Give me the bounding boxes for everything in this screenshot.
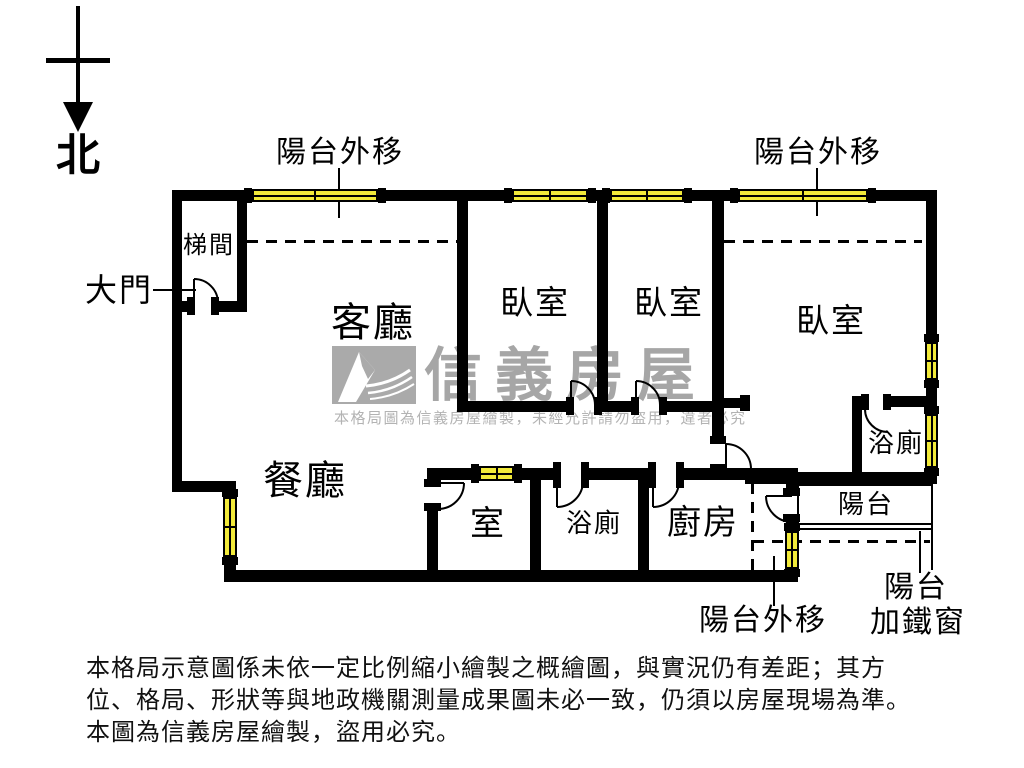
window-bed3-top xyxy=(738,189,868,202)
north-arrow-shaft xyxy=(76,6,80,106)
window-cap xyxy=(924,334,939,342)
doorjamb-bath1 xyxy=(553,462,561,488)
doorjamb-bed1 xyxy=(594,397,602,415)
room-label-bedroom3: 臥室 xyxy=(796,306,866,339)
dashed-old-balcony-bed3 xyxy=(724,240,922,243)
annotation-balcony-out-top-left: 陽台外移 xyxy=(276,138,404,168)
doorjamb-bed1 xyxy=(566,397,574,415)
doorjamb-smallroom xyxy=(424,503,441,511)
window-cap xyxy=(222,489,238,497)
leader-balcony-iron xyxy=(919,531,921,573)
room-label-bedroom1: 臥室 xyxy=(500,288,570,321)
doorjamb-balcony xyxy=(783,514,800,522)
doorjamb-smallroom xyxy=(424,479,441,487)
disclaimer-line2: 位、格局、形狀等與地政機關測量成果圖未必一致，仍須以房屋現場為準。 xyxy=(86,689,911,713)
wall-lower-right xyxy=(745,472,937,484)
room-label-bath2: 浴廁 xyxy=(868,431,924,457)
window-dining-left xyxy=(223,497,237,557)
room-label-living: 客廳 xyxy=(331,303,415,343)
doorjamb-balcony xyxy=(783,488,800,496)
window-smallroom-top xyxy=(479,466,514,481)
window-kitchen-right xyxy=(785,531,799,569)
window-cap xyxy=(471,464,479,483)
dashed-old-balcony-kitchen xyxy=(751,483,754,580)
wall-bed2-bed3-divider xyxy=(712,190,724,443)
wall-smallroom-bath-divider xyxy=(530,468,541,582)
doorjamb-bath2 xyxy=(883,394,891,410)
room-label-dining: 餐廳 xyxy=(263,461,347,501)
annotation-balcony-iron-line2: 加鐵窗 xyxy=(870,608,966,638)
room-label-balcony: 陽台 xyxy=(838,492,894,518)
annotation-balcony-iron-line1: 陽台 xyxy=(884,573,948,603)
window-cap xyxy=(924,468,939,476)
annotation-balcony-out-top-right: 陽台外移 xyxy=(754,138,882,168)
room-label-kitchen: 廚房 xyxy=(667,507,739,541)
window-bed3-right xyxy=(925,342,938,380)
balcony-edge-line xyxy=(931,530,933,570)
doorjamb-stairwell xyxy=(187,297,195,315)
window-cap xyxy=(602,188,610,203)
window-cap xyxy=(244,188,252,203)
room-label-bedroom2: 臥室 xyxy=(634,288,704,321)
doorjamb-bed2 xyxy=(631,397,639,415)
window-cap xyxy=(784,569,800,577)
annotation-balcony-out-bottom: 陽台外移 xyxy=(699,606,827,636)
wall-outer-left-upper xyxy=(172,190,182,492)
doorjamb-bath1 xyxy=(581,462,589,488)
window-bed2-top xyxy=(610,189,684,202)
window-cap xyxy=(868,188,876,203)
doorjamb-closet-stub xyxy=(740,395,750,411)
wall-bedrooms-bottom-c xyxy=(662,401,712,412)
doorjamb-bed3 xyxy=(710,436,726,444)
wall-stairwell-right xyxy=(237,190,247,312)
wall-bed1-bed2-divider xyxy=(597,190,608,412)
doorjamb-kitchen xyxy=(676,462,684,488)
wall-smallroom-left xyxy=(427,511,438,582)
floorplan-canvas: 北 信義房屋 本格局圖為信義房屋繪製，未經允許請勿盜用，違者必究 xyxy=(0,0,1024,768)
window-cap xyxy=(730,188,738,203)
wall-bedrooms-bottom-a xyxy=(457,401,572,412)
doorjamb-kitchen xyxy=(648,462,656,488)
doorjamb-bed3 xyxy=(710,464,726,472)
window-cap xyxy=(684,188,692,203)
wall-bed1-left xyxy=(457,190,468,412)
window-cap xyxy=(504,188,512,203)
disclaimer-line1: 本格局示意圖係未依一定比例縮小繪製之概繪圖，與實況仍有差距；其方 xyxy=(86,657,886,681)
disclaimer-line3: 本圖為信義房屋繪製，盜用必究。 xyxy=(86,721,461,745)
north-arrow-head xyxy=(63,102,93,132)
dashed-old-balcony-bottom-right xyxy=(753,540,930,543)
north-label: 北 xyxy=(56,134,102,178)
doorjamb-stairwell xyxy=(211,297,219,315)
window-bath2-right xyxy=(925,414,938,468)
doorjamb-bath2 xyxy=(861,394,869,410)
room-label-bath1: 浴廁 xyxy=(566,511,622,537)
window-cap xyxy=(784,523,800,531)
doorjamb-bed2 xyxy=(659,397,667,415)
room-label-stairwell: 梯間 xyxy=(183,234,235,258)
annotation-main-door: 大門 xyxy=(85,274,153,306)
north-arrow-crossbar xyxy=(46,58,110,63)
window-cap xyxy=(378,188,386,203)
brand-logo xyxy=(332,346,416,404)
window-living-top xyxy=(252,189,378,202)
dashed-old-balcony-living xyxy=(247,240,457,243)
window-bed1-top xyxy=(512,189,588,202)
window-cap xyxy=(222,557,238,565)
window-cap xyxy=(588,188,596,203)
window-cap xyxy=(924,406,939,414)
wall-outer-bottom xyxy=(224,570,797,582)
room-label-smallroom: 室 xyxy=(470,508,506,542)
window-cap xyxy=(514,464,522,483)
watermark-notice: 本格局圖為信義房屋繪製，未經允許請勿盜用，違者必究 xyxy=(334,412,747,427)
window-cap xyxy=(924,380,939,388)
